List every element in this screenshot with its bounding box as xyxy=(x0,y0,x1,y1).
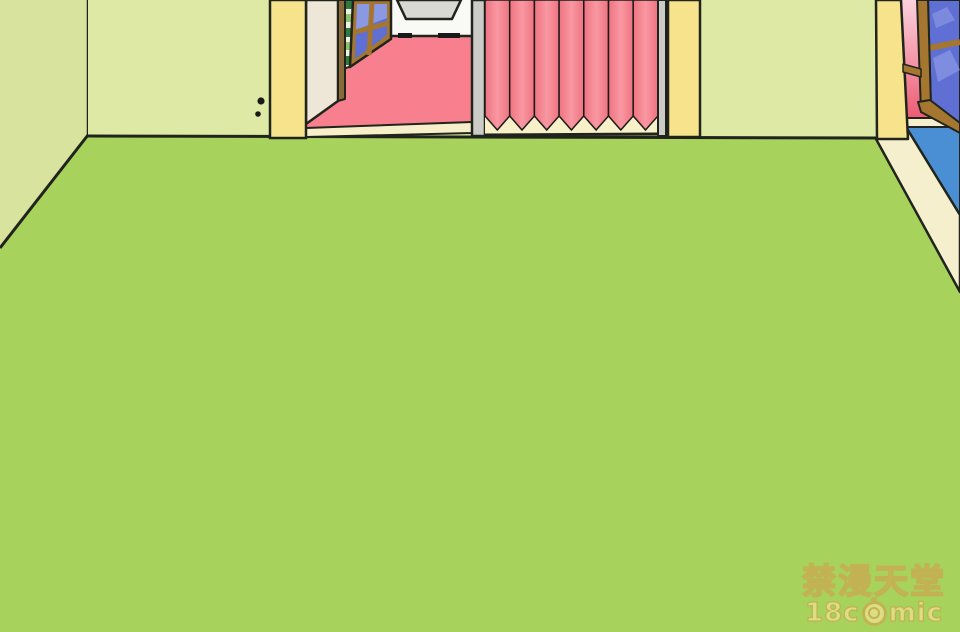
main-floor xyxy=(0,135,960,632)
door-face xyxy=(306,0,338,124)
curtain-opening xyxy=(485,0,669,137)
doorframe-post xyxy=(472,0,485,136)
curtain-threshold-line xyxy=(485,134,658,135)
curtain-slat xyxy=(510,0,535,130)
curtain-rail-right xyxy=(658,0,666,136)
curtain-slat xyxy=(559,0,584,130)
middle-door-jamb xyxy=(668,0,700,137)
curtain-slat xyxy=(534,0,559,130)
door-edge xyxy=(338,0,345,101)
curtain-slat xyxy=(584,0,609,130)
right-room-window xyxy=(917,0,960,133)
wall-dot-bottom xyxy=(255,111,261,117)
inner-wall-object xyxy=(397,0,461,19)
wall-dot-top xyxy=(257,97,264,104)
left-door-jamb xyxy=(270,0,306,138)
curtain-slat xyxy=(485,0,510,130)
inner-baseboard-mark-2 xyxy=(438,33,460,38)
inner-room xyxy=(306,0,472,137)
room-scene xyxy=(0,0,960,632)
screenshot-root: 禁漫天堂 18c mic xyxy=(0,0,960,632)
inner-baseboard-mark-1 xyxy=(398,33,412,38)
curtain-slat xyxy=(609,0,634,130)
curtain-slat xyxy=(633,0,658,130)
